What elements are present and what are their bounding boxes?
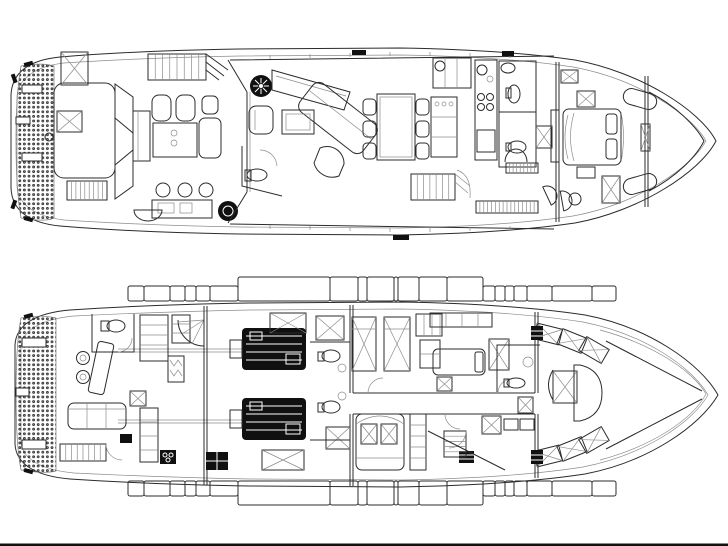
stairs-fan [455,170,470,198]
dining-chair [416,121,429,137]
bathroom-walls [497,345,540,392]
wardrobe [416,314,442,336]
corridor-wall [353,393,535,414]
sofa-cushions [68,403,126,429]
band-segment [505,481,514,496]
armchair [249,106,273,134]
vip-bench [549,370,554,400]
crew-sofa [68,403,126,429]
crew-toilet [107,320,125,332]
propeller-shafts [118,349,242,423]
dining-table [377,94,415,160]
bar-stool [178,183,192,197]
hanging-wardrobe [168,356,184,382]
cabin-wall [230,56,554,229]
glassware [442,102,446,106]
skylight-hatch [561,70,578,83]
deck-slot [22,440,46,449]
hanger-marks [170,360,182,376]
dresser [489,339,509,370]
dining-chair [416,143,429,159]
band-segment [170,481,185,496]
vip-berth [557,329,587,354]
band-segment [330,277,358,301]
bilge-pump [206,452,228,470]
door-swing [106,444,122,460]
wardrobe-lines [424,314,440,336]
aft-dinette-chair [152,95,171,121]
cabinet-dividers [446,313,478,327]
pillow [475,352,483,372]
stove-burner [487,94,494,101]
band-segment [144,286,170,301]
bar-stool [199,183,213,197]
toilet-tank [101,321,109,331]
cup-holder [171,140,177,146]
head-sink [501,63,515,73]
deck-plan-drawing [0,0,728,546]
galley-sink [487,76,493,82]
crew-head-walls [92,314,134,352]
main-deck-plan [10,48,716,240]
band-segment [419,481,447,505]
window-mullions [270,52,510,232]
band-segment [514,286,527,301]
flybridge-stairs-fan [206,54,228,80]
cleat [10,200,17,210]
band-segment [185,481,196,496]
bow-seat-pad [621,172,658,197]
galley-sink [435,61,445,71]
band-segment [330,481,358,505]
band-segment [552,286,592,301]
band-segment [170,286,185,301]
dining-chair [363,99,376,115]
aft-dinette-chair [176,95,195,121]
band-segment [394,481,398,505]
dining-chair [416,99,429,115]
aft-stairs [60,444,106,461]
band-segment [210,481,238,496]
nightstand [437,377,452,391]
guest-head-walls [499,61,536,167]
deck-slot [16,117,30,124]
galley-counter [433,58,471,88]
hatch-striped [531,326,543,340]
ventilation-hatch [262,450,304,470]
stair-frame [67,181,107,200]
band-segment [592,481,616,496]
band-segment [483,286,495,301]
day-head-wall [242,146,282,196]
deck-hatch [352,50,366,55]
step-hatch [130,391,146,406]
lower-bulwark-line [21,309,708,480]
stove-burner [80,374,86,380]
band-segment [196,286,210,301]
bathroom-sink [523,357,533,367]
deck-plan-page [0,0,728,546]
side-deck-grate [476,201,538,213]
deck-hatch [502,51,514,56]
band-segment [394,277,398,301]
stove-burner [77,352,90,365]
en-suite-toilet [322,401,340,413]
band-segment [398,277,419,301]
bathroom-toilet [507,378,525,388]
curved-chair [314,146,344,177]
door-swing [368,378,512,429]
closet [482,416,501,434]
ventilation-hatch [316,316,344,340]
head-sink [338,392,346,400]
cup-holder [171,130,177,136]
galley-island [475,60,497,160]
aft-deck-stairs [67,181,107,200]
aft-deck-sunpad [54,83,115,178]
dining-chair [363,143,376,159]
bar-sink [180,203,192,213]
spiral-stair [250,75,272,97]
band-segment [367,277,394,301]
band-segment [514,481,527,496]
headboard-arc [356,416,404,424]
hatch-striped [531,450,543,464]
band-segment [505,286,514,301]
door-swing [260,150,277,166]
drawer-column [140,408,158,462]
main-hull-outline [11,48,716,235]
step-hatch [518,397,533,413]
bar-sink [158,203,174,213]
galley-sink [477,65,487,75]
salon-bulkhead [228,60,247,223]
gearbox [230,410,242,428]
ventilation-hatch [326,427,350,449]
band-segment [592,286,616,301]
wardrobe-shelves [410,425,426,458]
aft-l-bench [202,96,218,114]
glassware [435,102,439,106]
deck-slot [16,388,29,396]
band-segment [367,481,394,505]
band-segment [447,277,483,301]
band-segment [358,277,367,301]
band-segment [358,481,367,505]
twin-bed [384,317,410,371]
bow-inner-curve [600,330,706,460]
crew-lockers [140,315,168,361]
vip-berth [579,427,610,454]
starboard-engine [230,398,306,440]
hull-window-band-upper [128,277,616,301]
head-sink [338,364,346,372]
stove-burner [77,371,90,384]
band-segment [185,286,196,301]
band-segment [196,481,210,496]
vip-bench [574,365,602,421]
dining-table-top [380,97,412,157]
band-segment [419,277,447,301]
flybridge-stairs [148,54,206,80]
cabinet-row [430,313,492,327]
vanity-stool [569,193,581,205]
aft-hatch [61,52,88,85]
coffee-table [282,110,314,134]
band-segment [128,286,144,301]
salon-corner-sofa [295,79,380,157]
locker-shelves [140,325,168,345]
aft-settee-wedge [115,84,133,133]
deck-slot [22,338,46,347]
twin-bed [352,317,376,371]
stove-burner [478,104,485,111]
bench [577,167,595,178]
pillow [361,424,377,444]
bed-blanket-fold [565,113,574,161]
stove-burner [487,104,494,111]
en-suite-toilet [322,350,340,362]
pillow [606,139,617,159]
band-segment [398,481,419,505]
vanity-cabinet [602,176,620,203]
bow-seat-pad [621,87,658,112]
vip-berth [579,337,610,364]
aft-l-bench [199,118,221,158]
deck-slot [22,85,42,93]
deck-hatch [393,235,409,240]
band-segment [527,481,552,496]
forward-guest-bed [433,349,485,375]
bow-v-lines [606,341,702,449]
band-segment [238,277,330,301]
head-wall [310,342,350,440]
deck-slot [22,153,42,161]
aft-settee-wedge [115,150,133,199]
band-segment [552,481,592,496]
band-segment [210,286,238,301]
stove-burner [80,355,86,361]
nightstand [577,91,595,107]
galley-cabinet [477,130,495,152]
bow-inner-line [649,92,704,191]
band-segment [527,286,552,301]
side-deck-grate [506,163,538,173]
storage-box [504,419,518,430]
pillow [606,114,617,134]
aft-hatch [57,111,82,132]
aft-console [133,111,150,161]
band-segment [238,481,330,505]
stair-frame [506,163,538,173]
pillow [381,424,397,444]
vip-dinette-table [553,371,577,403]
band-segment [495,286,505,301]
stove-burner [478,94,485,101]
stairs-to-lower-deck [411,174,455,200]
vip-berth [557,437,587,462]
wardrobe [410,414,426,470]
bar-stool [156,183,170,197]
master-bed [563,109,621,165]
lower-deck-plan [15,302,718,487]
drawer-lines [140,422,158,450]
storage-box [520,419,534,430]
glassware [449,102,453,106]
vanity-stool [543,183,561,205]
crew-lockers [172,315,190,343]
vanity-stool [560,189,573,210]
door-swing [118,338,132,352]
angled-cabinet [272,70,350,110]
cleat [11,74,18,84]
crew-tv [120,434,132,443]
linen-locker [536,126,552,148]
